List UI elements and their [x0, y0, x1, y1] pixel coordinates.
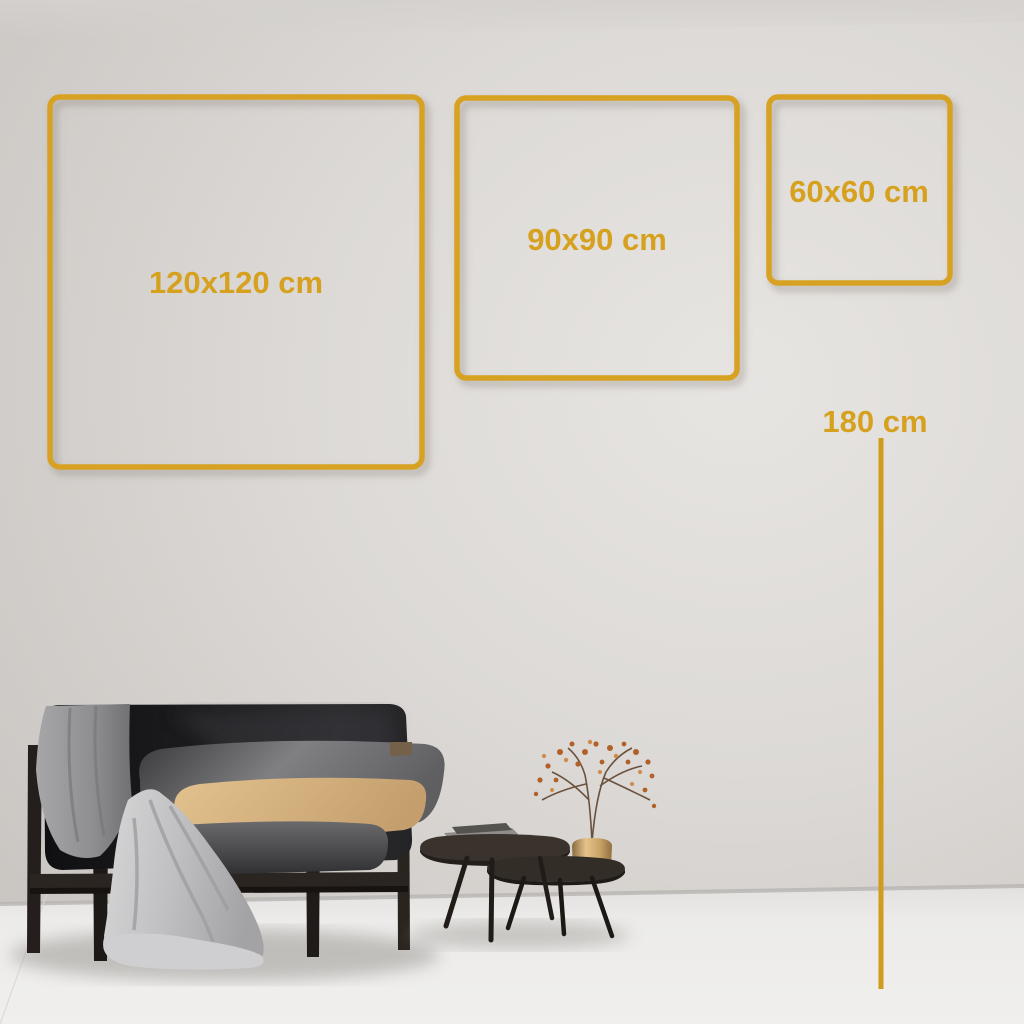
- svg-text:60x60 cm: 60x60 cm: [789, 174, 929, 209]
- svg-text:90x90 cm: 90x90 cm: [527, 222, 667, 257]
- svg-text:120x120 cm: 120x120 cm: [149, 265, 323, 300]
- svg-text:180 cm: 180 cm: [822, 404, 927, 439]
